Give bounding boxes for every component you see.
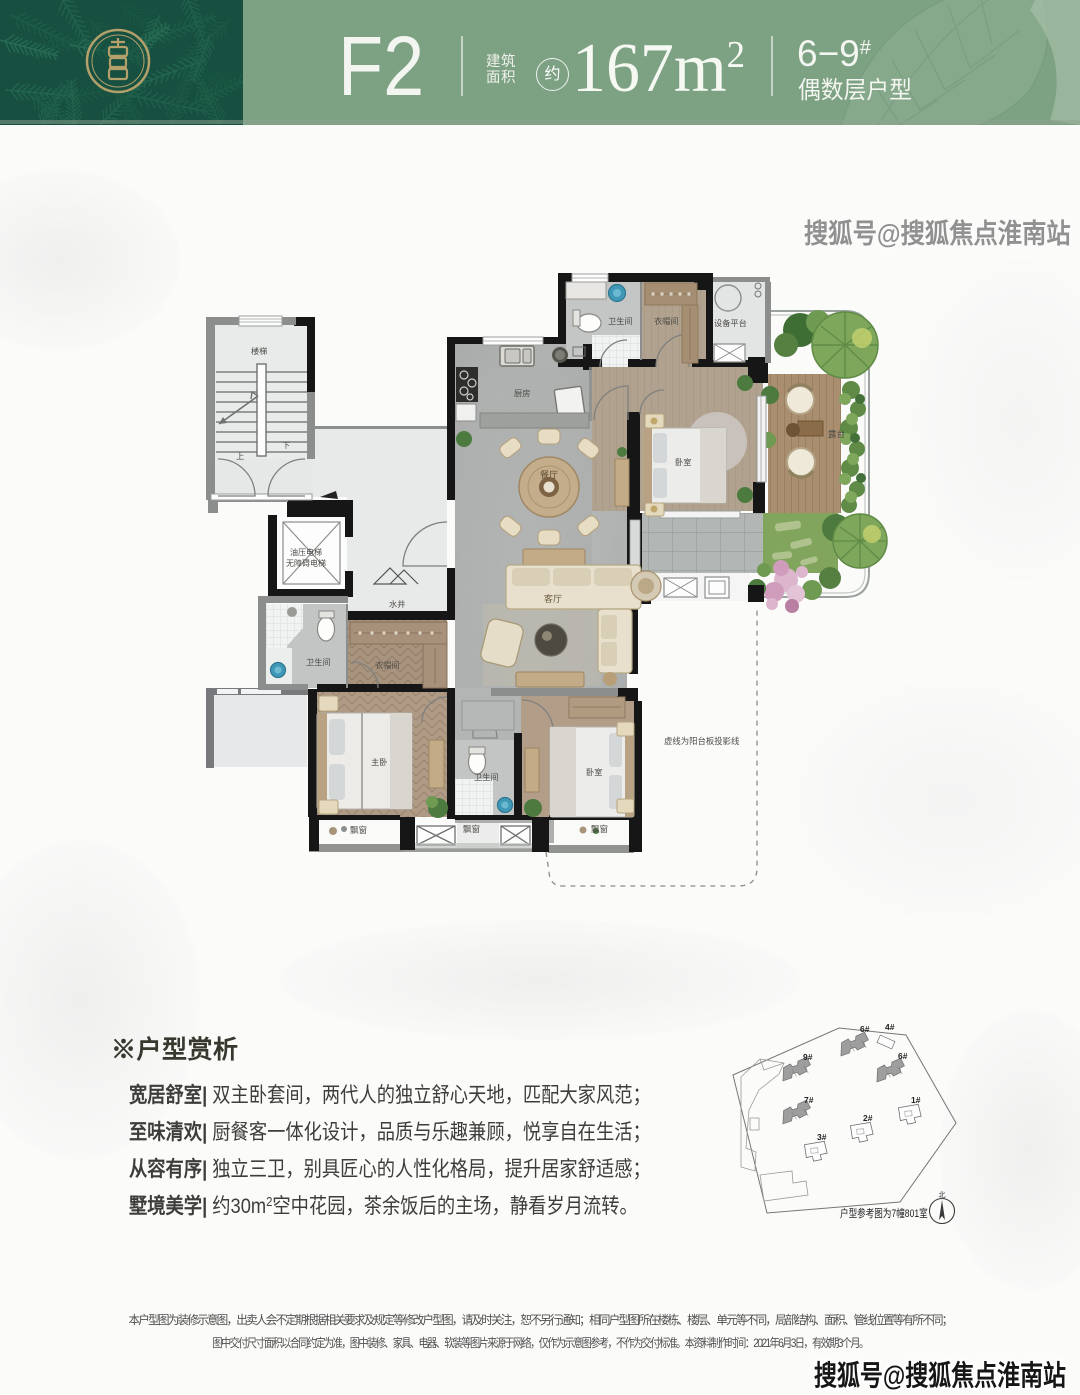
svg-text:客厅: 客厅 — [544, 593, 562, 604]
svg-text:油压电梯: 油压电梯 — [290, 547, 322, 557]
svg-text:2#: 2# — [863, 1113, 873, 1123]
svg-text:餐厅: 餐厅 — [540, 469, 558, 480]
svg-text:虚线为阳台板投影线: 虚线为阳台板投影线 — [664, 736, 740, 746]
svg-text:卫生间: 卫生间 — [474, 772, 499, 782]
svg-text:卧室: 卧室 — [586, 767, 602, 777]
svg-text:6#: 6# — [898, 1051, 908, 1061]
svg-text:衣帽间: 衣帽间 — [375, 660, 400, 670]
svg-text:4#: 4# — [885, 1022, 895, 1032]
svg-text:1#: 1# — [911, 1095, 921, 1105]
svg-text:飘窗: 飘窗 — [463, 824, 480, 834]
svg-text:楼梯: 楼梯 — [251, 346, 267, 356]
svg-text:9#: 9# — [803, 1052, 813, 1062]
svg-text:卧室: 卧室 — [675, 457, 691, 467]
svg-text:主卧: 主卧 — [371, 757, 387, 767]
svg-text:卫生间: 卫生间 — [608, 316, 633, 326]
svg-text:水井: 水井 — [389, 599, 405, 609]
svg-text:户型参考图为7幢801室: 户型参考图为7幢801室 — [840, 1206, 928, 1220]
svg-text:无障碍电梯: 无障碍电梯 — [286, 558, 326, 568]
svg-text:7#: 7# — [804, 1095, 814, 1105]
svg-text:飘窗: 飘窗 — [591, 824, 608, 834]
svg-text:6#: 6# — [860, 1024, 870, 1034]
svg-text:下: 下 — [282, 441, 290, 450]
svg-text:厨房: 厨房 — [514, 388, 530, 398]
svg-text:上: 上 — [236, 452, 244, 461]
svg-text:飘窗: 飘窗 — [350, 825, 367, 835]
svg-text:3#: 3# — [817, 1132, 827, 1142]
svg-text:衣帽间: 衣帽间 — [654, 316, 679, 326]
svg-text:露台: 露台 — [828, 429, 845, 439]
svg-text:卫生间: 卫生间 — [306, 657, 331, 667]
svg-text:设备平台: 设备平台 — [714, 318, 747, 328]
svg-text:北: 北 — [939, 1191, 946, 1199]
